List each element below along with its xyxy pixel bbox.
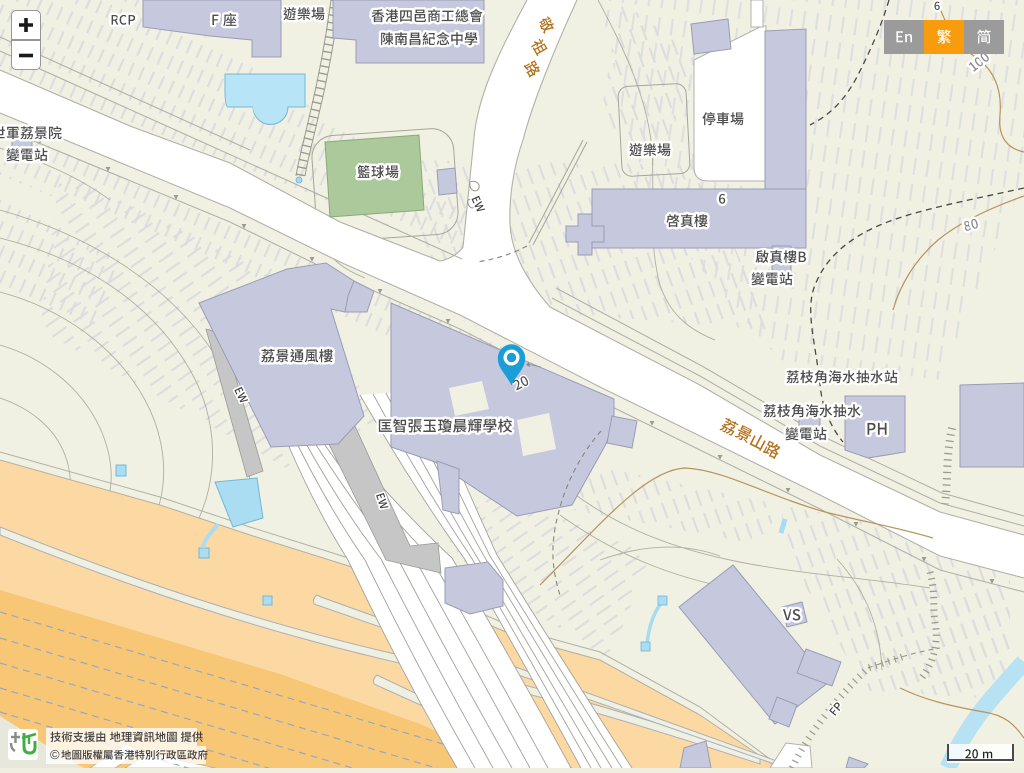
svg-text:©: © [50, 747, 60, 762]
